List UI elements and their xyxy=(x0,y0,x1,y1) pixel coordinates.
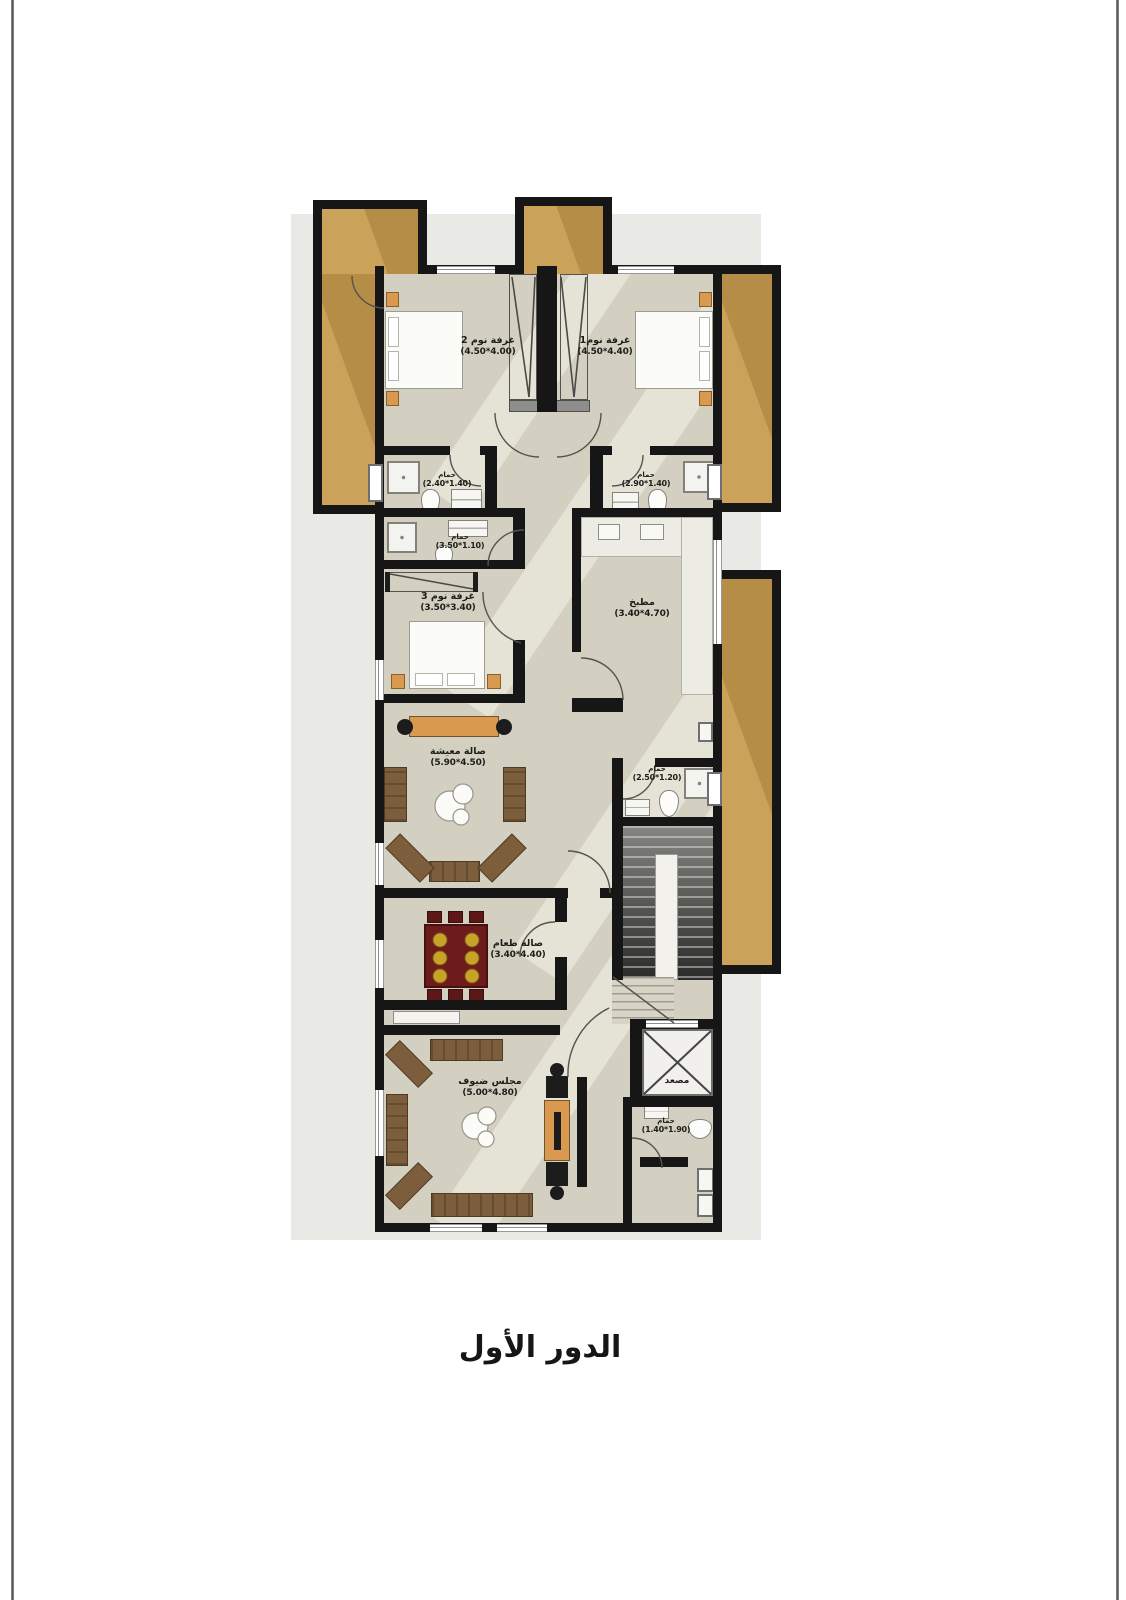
room-label-bath-hall: حمام (2.50*1.20) xyxy=(622,765,692,782)
majlis-sofa-left xyxy=(386,1094,408,1166)
bedroom1-nightstand xyxy=(699,292,712,307)
window xyxy=(618,266,674,274)
corner-cabinet xyxy=(697,1194,714,1217)
wall xyxy=(375,1000,560,1010)
room-name: حمام xyxy=(622,765,692,773)
room-name: غرفة نوم 2 xyxy=(428,336,548,347)
window-kitchen xyxy=(713,540,722,644)
wall xyxy=(630,1096,722,1107)
wall xyxy=(713,965,781,974)
window-box xyxy=(707,772,722,806)
dining-chair xyxy=(448,911,463,923)
tv-unit-cap xyxy=(546,1162,568,1186)
wall xyxy=(513,508,525,569)
balcony-right-lower xyxy=(722,579,772,965)
wall xyxy=(772,570,781,974)
bedroom1-pillow xyxy=(699,317,710,347)
wall-kitchen-left xyxy=(572,517,581,652)
room-dims: (1.40*1.90) xyxy=(626,1125,706,1134)
majlis-sofa-top xyxy=(430,1039,503,1061)
window xyxy=(375,843,384,885)
wardrobe-end xyxy=(385,572,390,592)
balcony-top-center xyxy=(524,206,603,274)
balcony-left-top xyxy=(322,209,418,274)
room-name: مجلس ضيوف xyxy=(430,1077,550,1088)
room-dims: (5.00*4.80) xyxy=(430,1088,550,1098)
room-label-elevator: مصعد xyxy=(645,1076,709,1086)
room-label-bedroom1: غرفة نوم1 (4.50*4.40) xyxy=(545,336,665,357)
kitchen-sink-icon xyxy=(640,524,664,540)
room-dims: (3.40*4.70) xyxy=(592,609,692,619)
room-label-majlis: مجلس ضيوف (5.00*4.80) xyxy=(430,1077,550,1098)
room-dims: (5.90*4.50) xyxy=(398,758,518,768)
bedroom3-nightstand xyxy=(391,674,405,689)
room-label-bath-guest: حمام (1.40*1.90) xyxy=(626,1117,706,1134)
room-label-bath-mid: حمام (3.50*1.10) xyxy=(425,533,495,550)
room-name: حمام xyxy=(611,471,681,479)
window-box xyxy=(368,464,383,502)
room-name: حمام xyxy=(412,471,482,479)
room-name: مطبخ xyxy=(592,598,692,609)
page-border-right xyxy=(1116,0,1119,1600)
bedroom2-pillow xyxy=(388,317,399,347)
room-dims: (3.40*4.40) xyxy=(458,950,578,960)
wall xyxy=(623,1097,632,1223)
wall xyxy=(603,197,612,274)
wall xyxy=(375,694,525,703)
wall xyxy=(375,888,568,898)
stairs-lower-flight xyxy=(612,977,674,1024)
page-border-left xyxy=(11,0,14,1600)
wall xyxy=(313,505,384,514)
room-label-bath-master-left: حمام (2.40*1.40) xyxy=(412,471,482,488)
room-name: غرفة نوم 3 xyxy=(388,592,508,603)
wall xyxy=(572,508,722,517)
wall xyxy=(555,893,567,922)
window xyxy=(437,266,495,274)
wall xyxy=(650,446,713,455)
wall xyxy=(515,197,612,206)
room-name: حمام xyxy=(425,533,495,541)
wall-elevator-left xyxy=(630,1019,642,1105)
dining-chair xyxy=(469,911,484,923)
buffet-shelf xyxy=(393,1011,460,1024)
elevator-door xyxy=(646,1020,698,1028)
room-name: مصعد xyxy=(665,1076,690,1086)
bedroom2-pillow xyxy=(388,351,399,381)
stove-icon xyxy=(598,524,620,540)
window xyxy=(375,940,384,988)
wall xyxy=(600,888,623,898)
wall-exterior-right xyxy=(713,265,722,1232)
living-sofa-bottom xyxy=(429,861,480,882)
living-tv-console xyxy=(409,716,499,737)
wall xyxy=(313,200,322,514)
room-label-bedroom2: غرفة نوم 2 (4.50*4.00) xyxy=(428,336,548,357)
wall xyxy=(640,1157,688,1167)
room-name: حمام xyxy=(626,1117,706,1125)
living-sofa-right xyxy=(503,767,526,822)
bedroom3-nightstand xyxy=(487,674,501,689)
wall xyxy=(572,698,623,712)
bedroom1-pillow xyxy=(699,351,710,381)
window xyxy=(497,1224,547,1232)
wall-exterior-left xyxy=(375,266,384,1232)
bedroom1-nightstand xyxy=(699,391,712,406)
majlis-sofa-bottom xyxy=(431,1193,533,1217)
tv-screen-icon xyxy=(554,1112,561,1150)
room-label-bedroom3: غرفة نوم 3 (3.50*3.40) xyxy=(388,592,508,613)
wall xyxy=(313,200,427,209)
wall xyxy=(418,200,427,274)
hall-cabinet xyxy=(698,722,713,742)
wall xyxy=(375,1025,560,1035)
wall xyxy=(772,265,781,512)
room-label-dining: صالة طعام (3.40*4.40) xyxy=(458,939,578,960)
wardrobe-end xyxy=(473,572,478,592)
floor-plan-page: غرفة نوم 2 (4.50*4.00) غرفة نوم1 (4.50*4… xyxy=(0,0,1126,1600)
room-label-bath-master-right: حمام (2.90*1.40) xyxy=(611,471,681,488)
window-box xyxy=(707,464,722,500)
wall xyxy=(375,560,513,569)
room-dims: (2.50*1.20) xyxy=(622,773,692,782)
room-dims: (3.50*1.10) xyxy=(425,541,495,550)
bedroom3-pillow xyxy=(415,673,443,686)
balcony-right-upper xyxy=(722,274,772,503)
corner-cabinet xyxy=(697,1168,714,1192)
wall xyxy=(617,817,722,826)
room-dims: (4.50*4.40) xyxy=(545,347,665,357)
room-label-kitchen: مطبخ (3.40*4.70) xyxy=(592,598,692,619)
bedroom3-pillow xyxy=(447,673,475,686)
dining-chair xyxy=(427,911,442,923)
window xyxy=(375,1090,384,1156)
wall xyxy=(375,508,513,517)
room-dims: (2.90*1.40) xyxy=(611,479,681,488)
bedroom3-wardrobe xyxy=(389,572,475,592)
wall xyxy=(480,446,497,455)
window xyxy=(430,1224,482,1232)
room-dims: (2.40*1.40) xyxy=(412,479,482,488)
wall xyxy=(713,503,781,512)
staircase-landing xyxy=(655,854,678,980)
wall xyxy=(590,446,612,455)
bedroom2-nightstand xyxy=(386,391,399,406)
room-label-living: صالة معيشة (5.90*4.50) xyxy=(398,747,518,768)
room-dims: (3.50*3.40) xyxy=(388,603,508,613)
window xyxy=(375,660,384,700)
room-name: غرفة نوم1 xyxy=(545,336,665,347)
wall xyxy=(687,265,781,274)
wall xyxy=(713,570,781,579)
room-dims: (4.50*4.00) xyxy=(428,347,548,357)
living-sofa-left xyxy=(384,767,407,822)
bedroom2-nightstand xyxy=(386,292,399,307)
room-name: صالة معيشة xyxy=(398,747,518,758)
sink-vanity-icon xyxy=(625,799,650,816)
wall-exterior-bottom xyxy=(375,1223,722,1232)
room-name: صالة طعام xyxy=(458,939,578,950)
wall xyxy=(515,197,524,274)
shower-icon xyxy=(387,522,417,553)
wall xyxy=(384,446,450,455)
wall-tv-stub xyxy=(577,1077,587,1187)
floor-title: الدور الأول xyxy=(373,1330,707,1365)
wall-stairs-left xyxy=(612,823,623,980)
